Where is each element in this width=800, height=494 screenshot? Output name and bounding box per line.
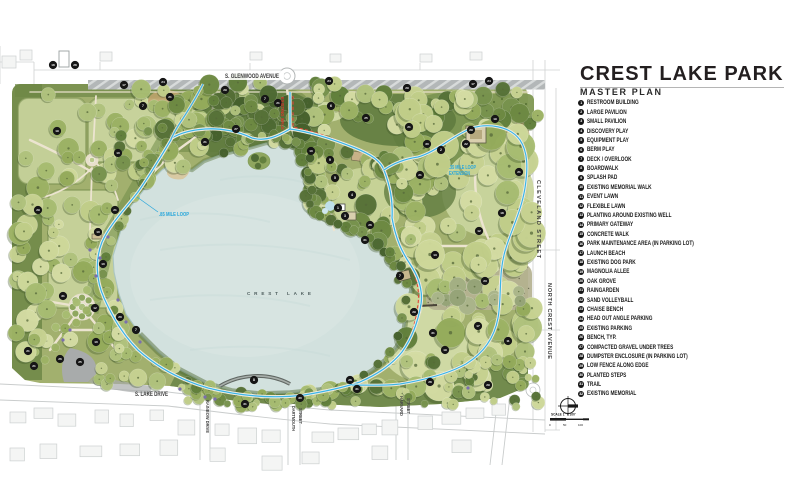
svg-text:29: 29 [469,128,473,132]
svg-text:19: 19 [55,129,59,133]
svg-text:CLEVELAND STREET: CLEVELAND STREET [535,180,541,259]
svg-text:21: 21 [276,101,280,105]
svg-text:25: 25 [78,360,82,364]
svg-text:7: 7 [264,97,266,101]
svg-text:9: 9 [329,158,331,162]
svg-text:NORTH CREST AVENUE: NORTH CREST AVENUE [546,283,552,359]
svg-text:30: 30 [298,396,302,400]
svg-text:29: 29 [223,88,227,92]
svg-text:7: 7 [135,328,137,332]
svg-text:24: 24 [487,79,491,83]
svg-text:12: 12 [477,229,481,233]
svg-text:29: 29 [36,208,40,212]
svg-text:29: 29 [405,86,409,90]
svg-text:21: 21 [203,140,207,144]
svg-text:10: 10 [309,149,313,153]
svg-text:21: 21 [26,349,30,353]
svg-text:RAINBOW DRIVE: RAINBOW DRIVE [205,400,210,433]
svg-text:7: 7 [142,104,144,108]
svg-text:20: 20 [118,315,122,319]
svg-text:25: 25 [364,116,368,120]
svg-text:24: 24 [327,79,331,83]
svg-text:17: 17 [476,324,480,328]
svg-text:3: 3 [344,214,346,218]
svg-text:10: 10 [94,340,98,344]
svg-text:21: 21 [32,364,36,368]
svg-text:26: 26 [368,223,372,227]
svg-text:22: 22 [464,142,468,146]
svg-text:12: 12 [93,306,97,310]
svg-text:7: 7 [399,274,401,278]
svg-text:26: 26 [348,378,352,382]
svg-text:30: 30 [425,142,429,146]
svg-text:SCALE 1" = 100': SCALE 1" = 100' [551,413,576,417]
svg-text:27: 27 [234,127,238,131]
svg-text:24: 24 [161,80,165,84]
svg-text:6: 6 [330,104,332,108]
svg-text:1: 1 [337,206,339,210]
svg-text:S. GLENWOOD AVENUE: S. GLENWOOD AVENUE [225,74,279,80]
svg-text:10: 10 [116,151,120,155]
svg-text:31: 31 [431,331,435,335]
svg-text:29: 29 [486,383,490,387]
svg-text:EXISTING WALK: EXISTING WALK [280,97,285,130]
svg-text:21: 21 [517,170,521,174]
svg-text:100: 100 [578,423,583,427]
svg-text:EXTENSION: EXTENSION [449,171,470,177]
svg-text:4: 4 [351,193,353,197]
svg-text:31: 31 [355,387,359,391]
svg-text:31: 31 [363,238,367,242]
svg-text:0: 0 [549,423,551,427]
svg-text:STREET: STREET [406,398,411,414]
svg-text:10: 10 [101,262,105,266]
svg-text:STREET: STREET [298,408,303,424]
svg-text:18: 18 [500,211,504,215]
svg-text:10: 10 [96,230,100,234]
svg-text:19: 19 [493,117,497,121]
svg-text:31: 31 [61,294,65,298]
svg-text:29: 29 [412,310,416,314]
svg-text:18: 18 [51,63,55,67]
svg-text:DARTMOUTH: DARTMOUTH [291,406,296,431]
svg-text:28: 28 [73,63,77,67]
svg-text:50: 50 [563,423,567,427]
svg-text:5: 5 [334,176,336,180]
svg-text:17: 17 [471,82,475,86]
svg-text:31: 31 [243,402,247,406]
svg-text:21: 21 [407,125,411,129]
svg-text:28: 28 [428,380,432,384]
svg-text:17: 17 [122,83,126,87]
svg-text:21: 21 [168,95,172,99]
svg-text:13: 13 [433,253,437,257]
svg-text:S. LAKE DRIVE: S. LAKE DRIVE [135,392,168,398]
svg-text:21: 21 [113,208,117,212]
svg-text:2: 2 [440,148,442,152]
svg-text:HARVARD: HARVARD [399,396,404,416]
svg-text:26: 26 [58,357,62,361]
svg-text:.85 MILE LOOP: .85 MILE LOOP [159,212,190,218]
svg-text:21: 21 [418,173,422,177]
svg-text:23: 23 [483,279,487,283]
svg-text:8: 8 [253,378,255,382]
svg-text:19: 19 [443,348,447,352]
svg-text:11: 11 [506,339,510,343]
